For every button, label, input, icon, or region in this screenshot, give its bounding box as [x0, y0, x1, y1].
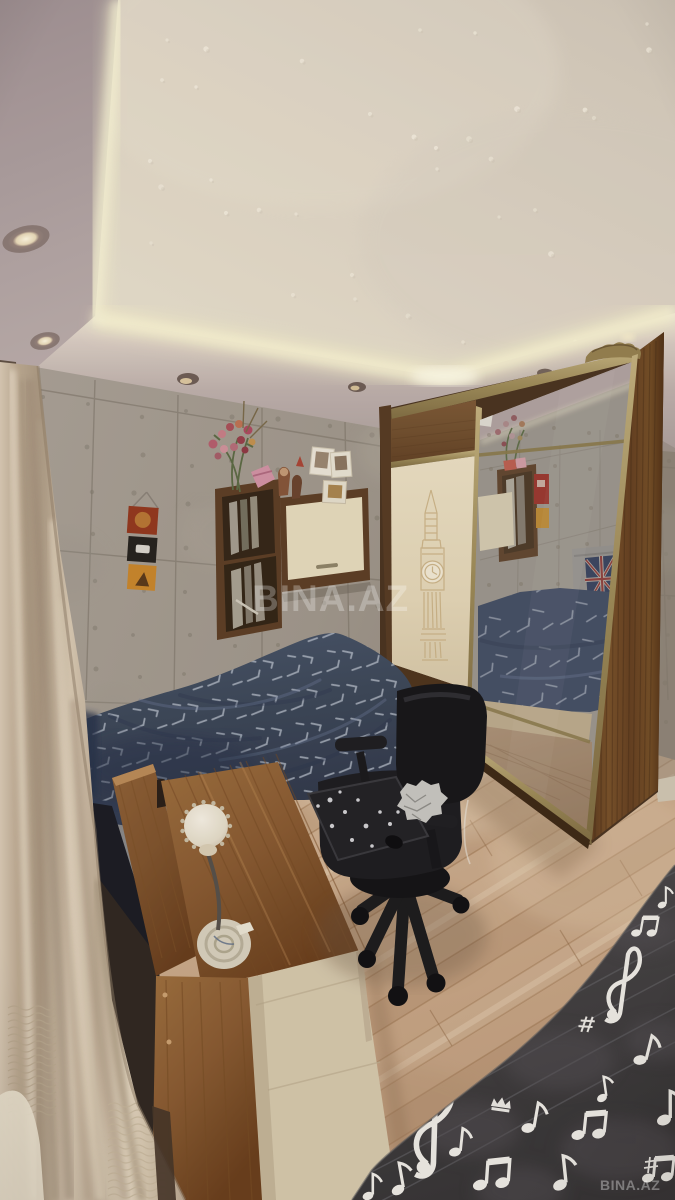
svg-text:BINA.AZ: BINA.AZ	[252, 578, 409, 619]
svg-text:BINA.AZ: BINA.AZ	[600, 1177, 660, 1193]
